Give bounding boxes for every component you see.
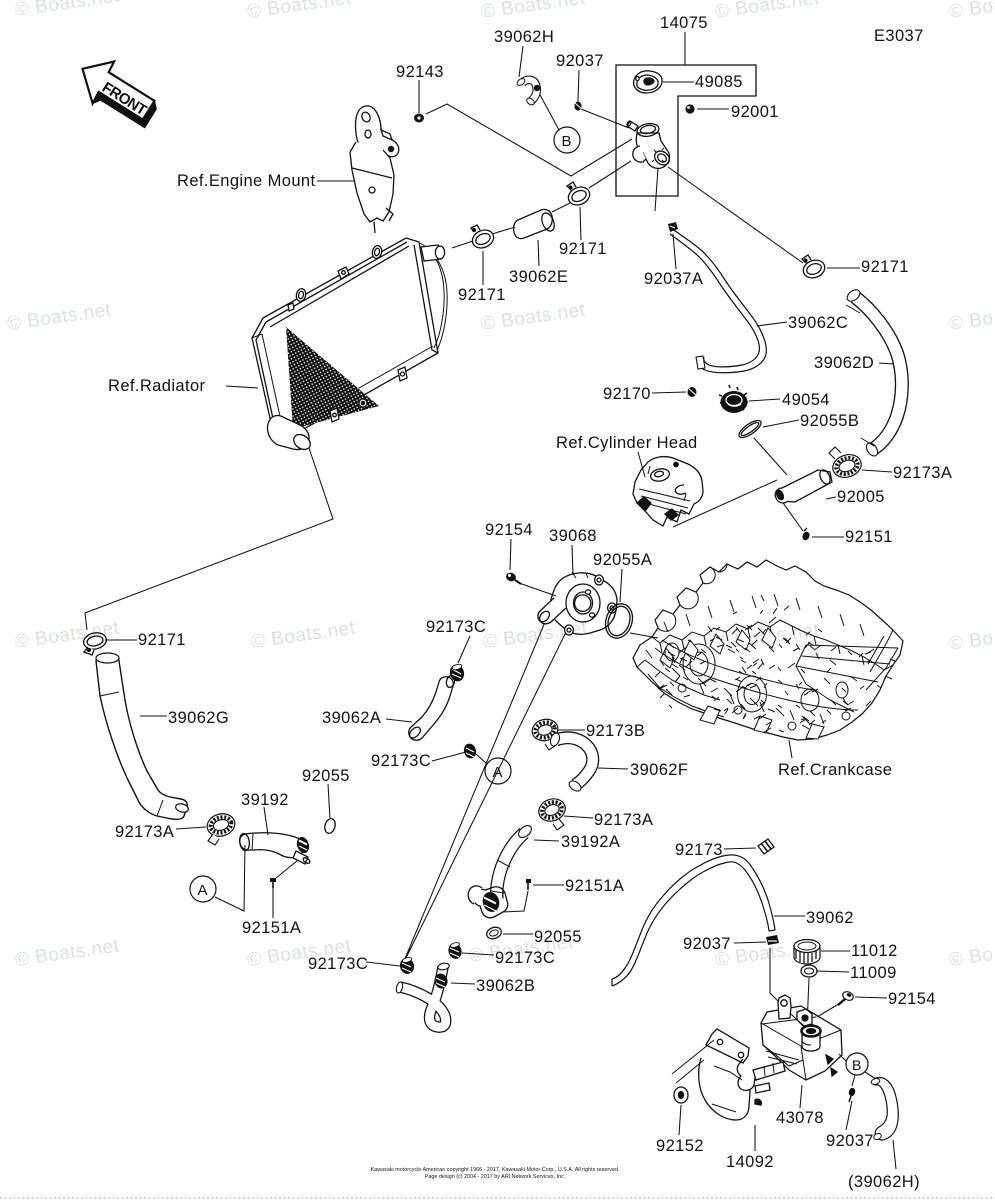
svg-text:39068: 39068 xyxy=(549,527,597,545)
svg-text:(39062H): (39062H) xyxy=(848,1173,920,1191)
svg-text:92055: 92055 xyxy=(534,928,582,946)
svg-text:14075: 14075 xyxy=(660,14,708,32)
svg-text:39062: 39062 xyxy=(806,909,854,927)
svg-text:39062B: 39062B xyxy=(476,977,535,995)
svg-text:A: A xyxy=(198,882,208,899)
svg-text:49054: 49054 xyxy=(782,391,830,409)
svg-text:92173: 92173 xyxy=(675,841,723,859)
svg-text:92171: 92171 xyxy=(138,631,186,649)
svg-text:Page design (c) 2004 - 2017 by: Page design (c) 2004 - 2017 by ARI Netwo… xyxy=(425,1174,566,1180)
svg-text:92055: 92055 xyxy=(302,767,350,785)
svg-text:92037: 92037 xyxy=(556,52,604,70)
svg-text:92173A: 92173A xyxy=(115,823,174,841)
svg-text:92171: 92171 xyxy=(458,286,506,304)
svg-text:39062E: 39062E xyxy=(509,268,568,286)
svg-text:92173A: 92173A xyxy=(893,464,952,482)
svg-text:Ref.Engine Mount: Ref.Engine Mount xyxy=(177,172,315,190)
svg-text:92055A: 92055A xyxy=(593,551,652,569)
svg-text:39192: 39192 xyxy=(241,791,289,809)
svg-text:92173C: 92173C xyxy=(495,949,555,967)
svg-text:92151A: 92151A xyxy=(242,919,301,937)
svg-text:92154: 92154 xyxy=(888,990,936,1008)
svg-text:92173C: 92173C xyxy=(308,955,368,973)
svg-text:92037A: 92037A xyxy=(644,270,703,288)
svg-text:92173B: 92173B xyxy=(586,722,645,740)
svg-text:Kawasaki motorcycle American c: Kawasaki motorcycle American copyright 1… xyxy=(371,1167,620,1173)
svg-text:Ref.Cylinder Head: Ref.Cylinder Head xyxy=(556,434,698,452)
svg-text:39062A: 39062A xyxy=(322,709,381,727)
svg-text:92143: 92143 xyxy=(396,63,444,81)
svg-text:11009: 11009 xyxy=(850,964,897,982)
svg-text:39062F: 39062F xyxy=(630,761,688,779)
svg-text:92151A: 92151A xyxy=(565,877,624,895)
svg-text:B: B xyxy=(852,1057,862,1073)
svg-text:E3037: E3037 xyxy=(874,27,924,45)
svg-text:14092: 14092 xyxy=(726,1153,774,1171)
svg-text:92005: 92005 xyxy=(837,488,885,506)
svg-text:92152: 92152 xyxy=(656,1137,704,1155)
svg-text:92173A: 92173A xyxy=(594,811,653,829)
svg-text:92037: 92037 xyxy=(683,935,731,953)
svg-text:39192A: 39192A xyxy=(561,833,620,851)
svg-text:92173C: 92173C xyxy=(426,618,486,636)
svg-text:92001: 92001 xyxy=(731,103,779,121)
svg-text:92055B: 92055B xyxy=(800,412,859,430)
svg-text:92151: 92151 xyxy=(845,528,893,546)
svg-text:92170: 92170 xyxy=(603,385,651,403)
svg-text:39062C: 39062C xyxy=(788,314,848,332)
svg-text:92171: 92171 xyxy=(559,240,607,258)
svg-text:92037: 92037 xyxy=(826,1132,874,1150)
svg-text:39062D: 39062D xyxy=(814,354,874,372)
svg-text:Ref.Radiator: Ref.Radiator xyxy=(108,377,206,395)
svg-text:39062G: 39062G xyxy=(168,709,229,727)
svg-text:Ref.Crankcase: Ref.Crankcase xyxy=(778,761,892,779)
svg-text:92154: 92154 xyxy=(485,521,533,539)
svg-text:92173C: 92173C xyxy=(371,752,431,770)
svg-text:B: B xyxy=(562,133,572,150)
svg-text:11012: 11012 xyxy=(851,942,898,960)
svg-text:43078: 43078 xyxy=(776,1109,824,1127)
svg-text:49085: 49085 xyxy=(695,73,743,91)
svg-text:39062H: 39062H xyxy=(494,28,554,46)
svg-text:92171: 92171 xyxy=(861,258,909,276)
